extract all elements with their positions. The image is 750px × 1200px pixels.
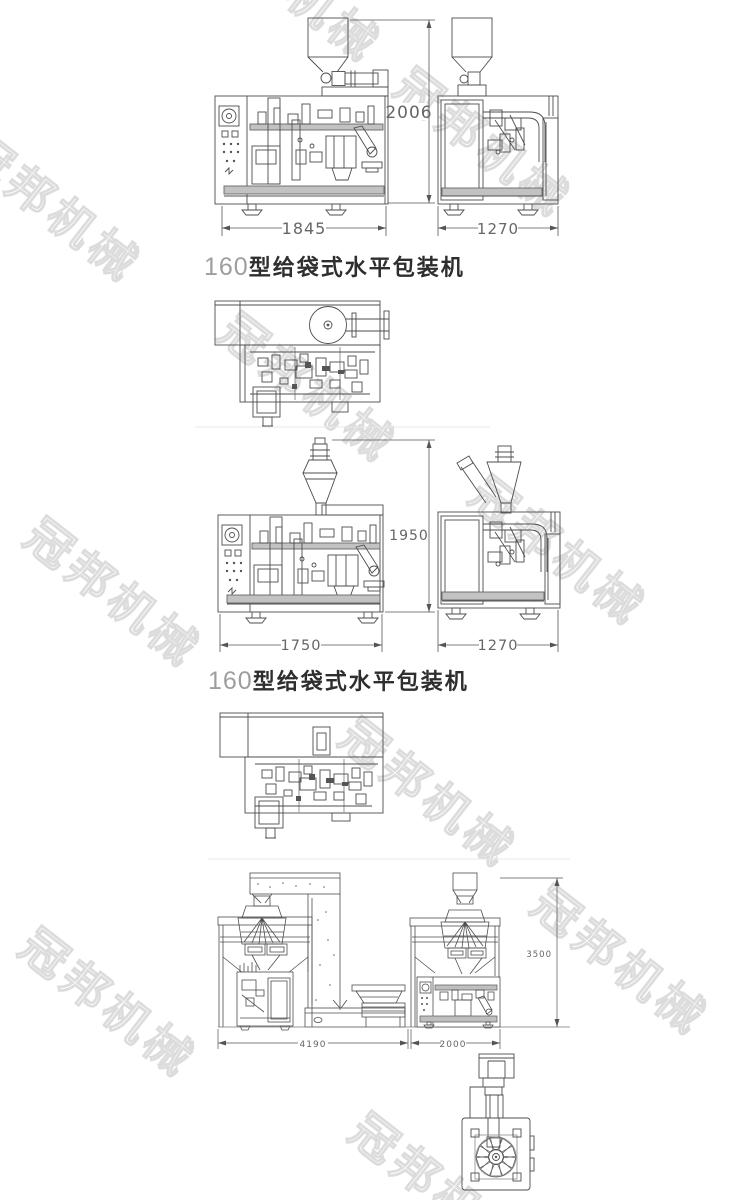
machine1-title: 160型给袋式水平包装机 [204, 250, 465, 282]
machine2-front-view [218, 438, 384, 623]
line-left-width-dimension: 4190 [300, 1040, 327, 1050]
machine2-depth-dimension: 1270 [478, 638, 519, 654]
machine1-front-view [215, 18, 388, 215]
machine1-model-number: 160 [204, 253, 249, 282]
machine2-top-view [208, 713, 570, 859]
machine2-side-view [438, 446, 560, 619]
technical-drawing-canvas: 2006 1845 [0, 0, 750, 1200]
machine2-name-text: 型给袋式水平包装机 [253, 664, 469, 696]
machine1-depth-dimension: 1270 [477, 220, 519, 238]
machine1-height-dimension: 2006 [385, 103, 432, 123]
line-right-width-dimension: 2000 [440, 1040, 467, 1050]
weigher-top-view [462, 1054, 534, 1190]
line-layout-right-assembly [410, 873, 500, 1028]
machine2-model-number: 160 [208, 667, 253, 696]
line-layout-left-assembly [218, 873, 570, 1030]
line-height-dimension: 3500 [526, 950, 552, 960]
machine1-top-view [195, 301, 490, 427]
machine2-height-dimension: 1950 [389, 528, 429, 544]
machine2-width-dimension: 1750 [281, 638, 322, 654]
machine1-width-dimension: 1845 [282, 219, 327, 238]
machine1-side-view [438, 18, 558, 215]
machine1-name-text: 型给袋式水平包装机 [249, 250, 465, 282]
machine2-title: 160型给袋式水平包装机 [208, 664, 469, 696]
catalog-page: 冠邦机械冠邦机械冠邦机械冠邦机械冠邦机械冠邦机械冠邦机械冠邦机械冠邦机械冠邦机械… [0, 0, 750, 1200]
